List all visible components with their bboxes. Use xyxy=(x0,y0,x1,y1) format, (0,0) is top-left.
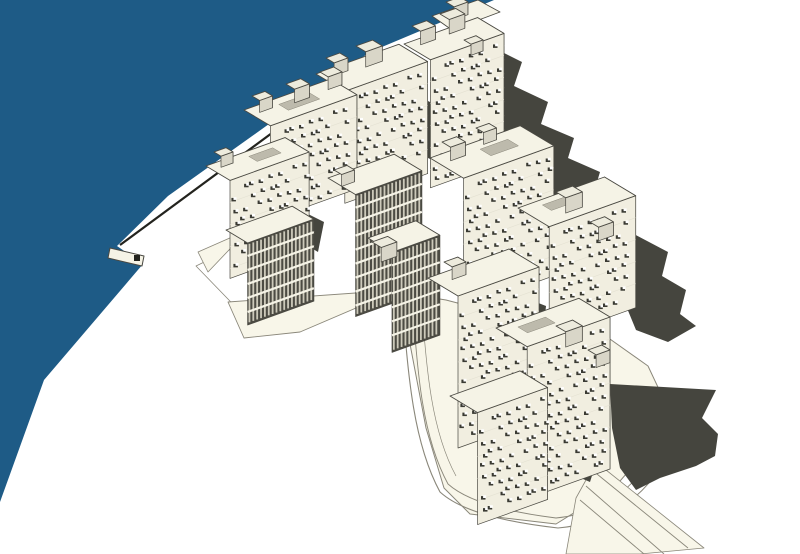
model-viewport xyxy=(0,0,800,554)
shadow-lower-right xyxy=(610,384,718,490)
model-render xyxy=(0,0,800,554)
